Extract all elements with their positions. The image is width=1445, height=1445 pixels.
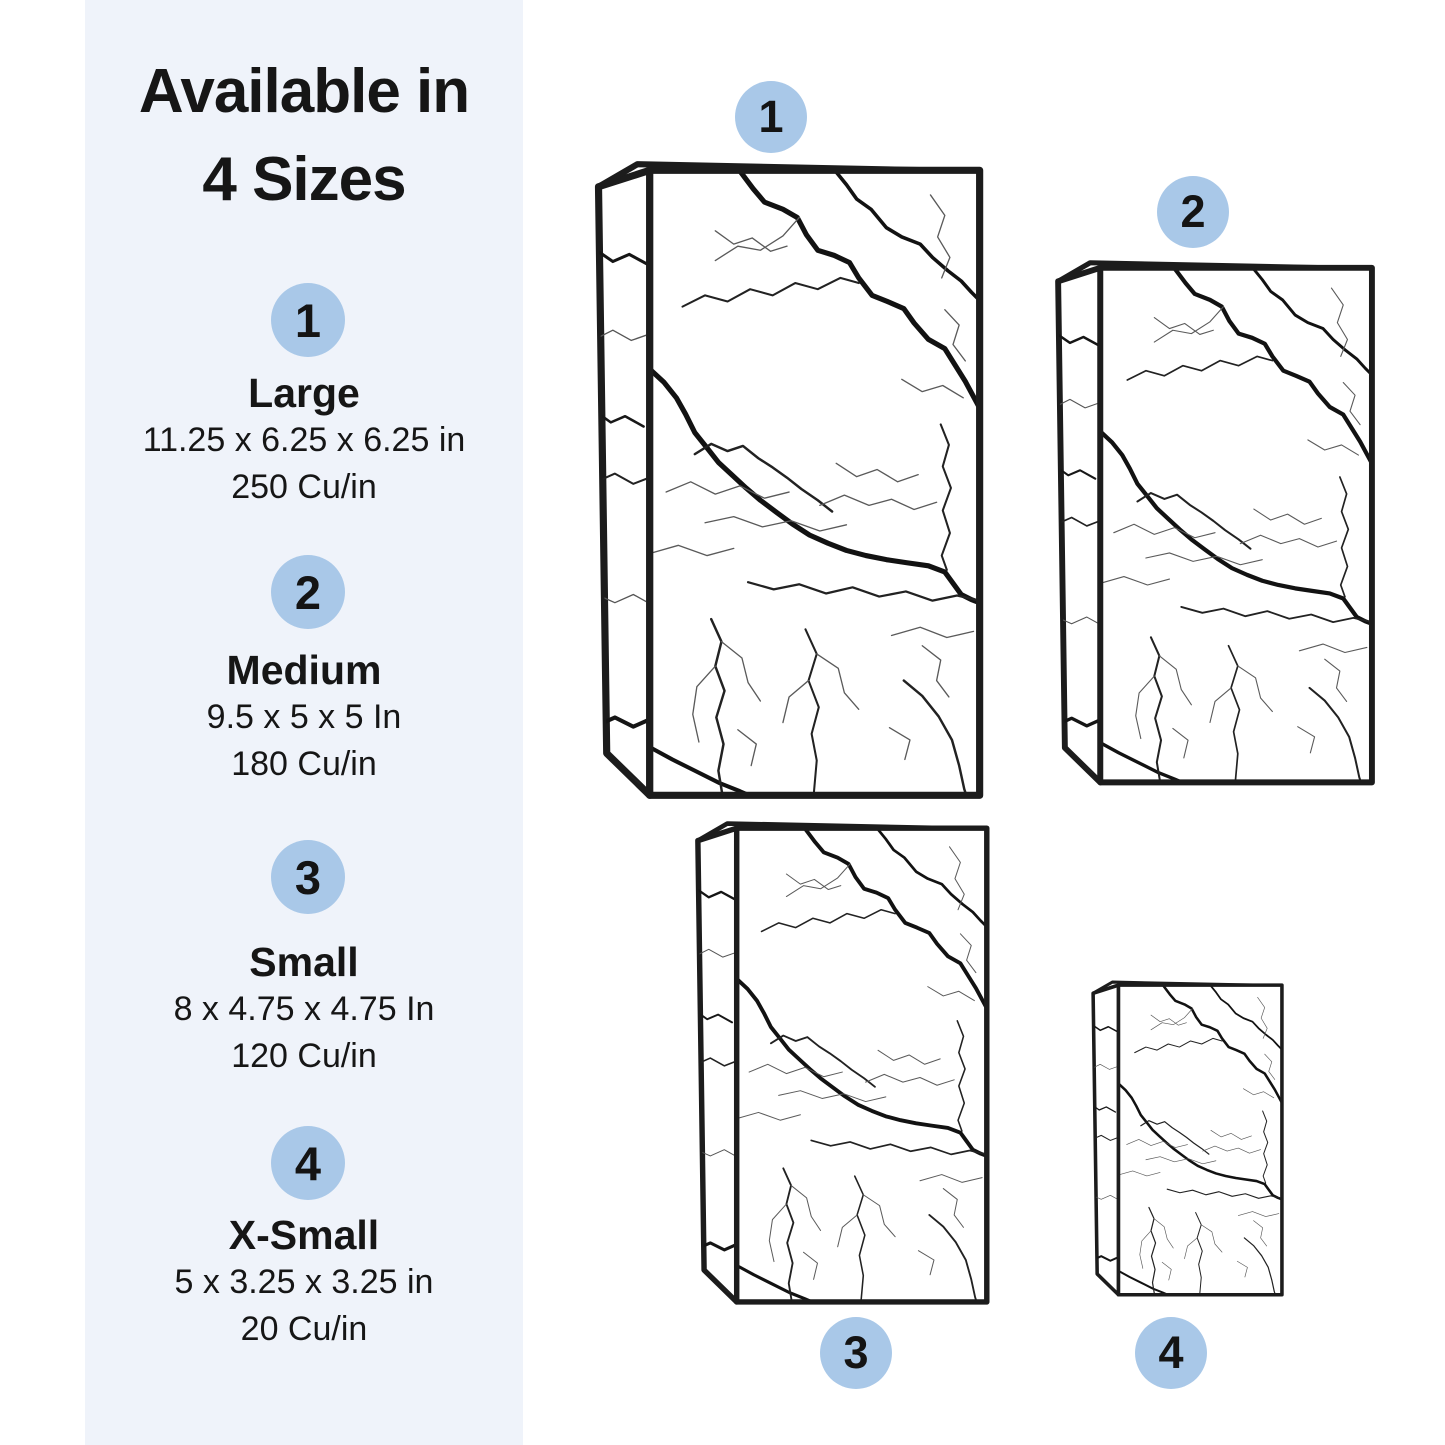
box-4-illustration: [1086, 978, 1286, 1309]
size-1-badge: 1: [271, 283, 345, 357]
size-2-badge: 2: [271, 555, 345, 629]
title-line-1: Available in: [85, 48, 523, 136]
size-4-entry: X-Small 5 x 3.25 x 3.25 in 20 Cu/in: [85, 1211, 523, 1353]
page-title: Available in 4 Sizes: [85, 48, 523, 224]
box-3-illustration: [687, 817, 993, 1324]
box-2-badge-number: 2: [1180, 186, 1205, 238]
size-2-badge-number: 2: [295, 565, 321, 620]
size-3-badge: 3: [271, 840, 345, 914]
box-1-illustration: [584, 156, 988, 824]
box-4-badge-number: 4: [1158, 1327, 1183, 1379]
size-2-name: Medium: [85, 646, 523, 694]
size-2-entry: Medium 9.5 x 5 x 5 In 180 Cu/in: [85, 646, 523, 788]
size-1-badge-number: 1: [295, 293, 321, 348]
size-3-entry: Small 8 x 4.75 x 4.75 In 120 Cu/in: [85, 938, 523, 1080]
size-3-name: Small: [85, 938, 523, 986]
size-4-volume: 20 Cu/in: [85, 1306, 523, 1353]
box-1-badge: 1: [735, 81, 807, 153]
size-3-badge-number: 3: [295, 850, 321, 905]
title-line-2: 4 Sizes: [85, 136, 523, 224]
size-3-volume: 120 Cu/in: [85, 1033, 523, 1080]
size-4-badge: 4: [271, 1126, 345, 1200]
size-4-badge-number: 4: [295, 1136, 321, 1191]
box-2-badge: 2: [1157, 176, 1229, 248]
size-1-entry: Large 11.25 x 6.25 x 6.25 in 250 Cu/in: [85, 369, 523, 511]
size-4-name: X-Small: [85, 1211, 523, 1259]
box-1-badge-number: 1: [758, 91, 783, 143]
size-1-volume: 250 Cu/in: [85, 464, 523, 511]
box-2-illustration: [1046, 256, 1379, 806]
size-2-dimensions: 9.5 x 5 x 5 In: [85, 694, 523, 741]
size-2-volume: 180 Cu/in: [85, 741, 523, 788]
box-4-badge: 4: [1135, 1317, 1207, 1389]
size-chart-infographic: Available in 4 Sizes 1 Large 11.25 x 6.2…: [0, 0, 1445, 1445]
size-4-dimensions: 5 x 3.25 x 3.25 in: [85, 1259, 523, 1306]
size-1-dimensions: 11.25 x 6.25 x 6.25 in: [85, 417, 523, 464]
size-1-name: Large: [85, 369, 523, 417]
box-3-badge-number: 3: [843, 1327, 868, 1379]
size-3-dimensions: 8 x 4.75 x 4.75 In: [85, 986, 523, 1033]
box-3-badge: 3: [820, 1317, 892, 1389]
